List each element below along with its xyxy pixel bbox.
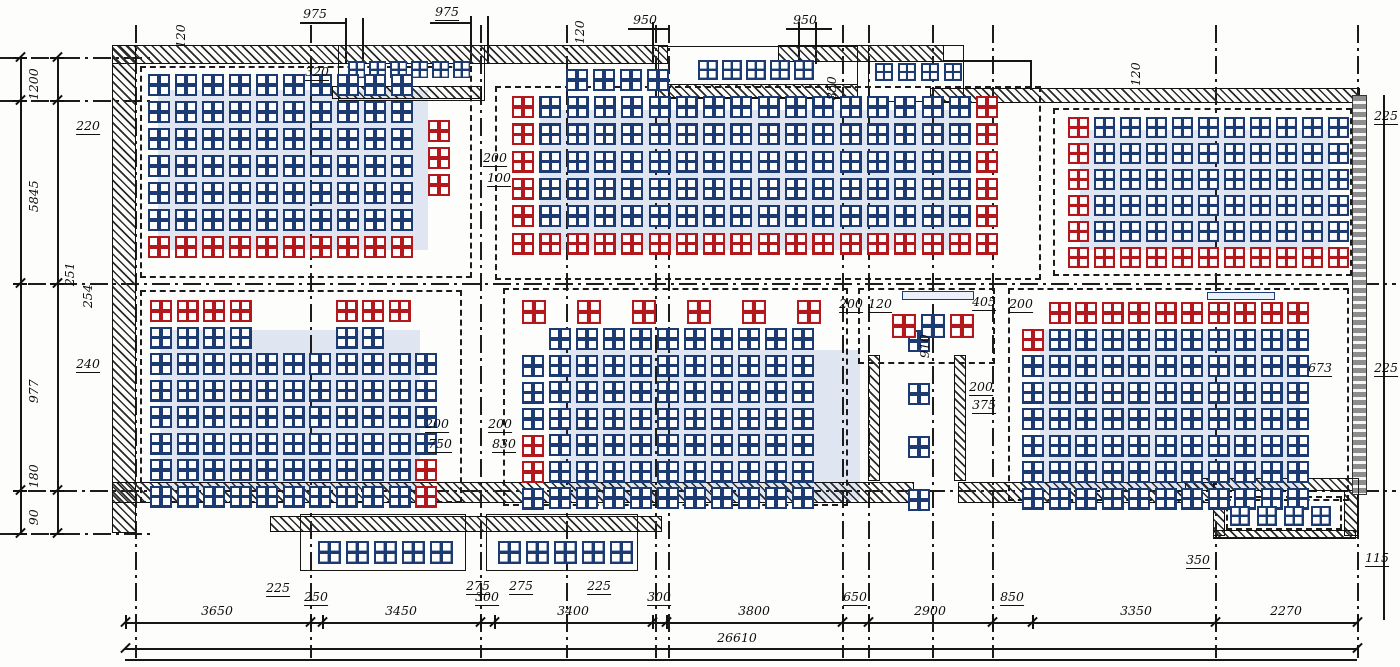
dimension-label: 115 [1365,552,1389,567]
block-red [336,300,358,322]
block-blue [621,123,643,145]
block-blue [1311,506,1331,526]
block-blue [765,487,787,509]
dimension-label: 910 [919,334,932,358]
block-blue [1146,195,1167,216]
block-blue [337,101,359,123]
block-blue [1075,488,1097,510]
dimension-label: 225 [1374,110,1398,125]
grid-axis-line [28,283,1396,285]
dimension-label: 90 [28,509,41,525]
block-blue [362,486,384,508]
dimension-label: 673 [1308,362,1332,377]
dimension-label: 240 [76,358,100,373]
block-blue [362,433,384,455]
block-blue [453,61,470,78]
block-blue [1198,195,1219,216]
block-blue [391,155,413,177]
block-blue [711,328,733,350]
block-blue [337,128,359,150]
block-blue [1261,408,1283,430]
block-blue [792,408,814,430]
block-blue [684,355,706,377]
block-blue [603,328,625,350]
block-blue [539,205,561,227]
block-blue [1208,488,1230,510]
block-blue [1287,461,1309,483]
block-blue [1075,355,1097,377]
block-blue [703,123,725,145]
block-blue [922,96,944,118]
block-blue [391,128,413,150]
block-blue [603,355,625,377]
block-blue [566,69,588,91]
block-blue [567,96,589,118]
block-red [415,486,437,508]
block-blue [1128,355,1150,377]
block-blue [1328,195,1349,216]
dimension-label: 200 [488,418,512,433]
block-red [1068,221,1089,242]
block-blue [738,355,760,377]
block-blue [1155,435,1177,457]
block-blue [549,434,571,456]
wall-hatched [954,355,966,481]
block-blue [1284,506,1304,526]
block-blue [867,96,889,118]
block-blue [649,178,671,200]
block-blue [711,381,733,403]
block-blue [576,408,598,430]
block-red [1172,247,1193,268]
block-blue [1287,382,1309,404]
block-blue [1261,329,1283,351]
block-blue [1172,169,1193,190]
block-blue [1094,169,1115,190]
block-red [1302,247,1323,268]
block-blue [922,178,944,200]
block-blue [794,60,814,80]
block-red [976,205,998,227]
block-blue [649,123,671,145]
block-blue [1302,221,1323,242]
block-blue [711,408,733,430]
block-blue [630,487,652,509]
block-red [512,123,534,145]
block-red [337,236,359,258]
block-blue [765,381,787,403]
block-blue [177,353,199,375]
block-blue [603,434,625,456]
dimension-label: 375 [972,399,996,414]
block-blue [867,151,889,173]
block-blue [1276,169,1297,190]
block-blue [1181,355,1203,377]
block-blue [792,328,814,350]
block-blue [610,541,633,564]
block-blue [175,209,197,231]
dimension-label: 320 [305,66,329,81]
block-blue [389,353,411,375]
block-red [512,233,534,255]
block-blue [758,205,780,227]
block-red [812,233,834,255]
dimension-line [125,648,1357,650]
lintel-bar [902,291,974,300]
block-red [512,178,534,200]
block-red [892,314,916,338]
block-blue [630,355,652,377]
block-blue [1049,329,1071,351]
dimension-label: 220 [76,120,100,135]
block-blue [1181,488,1203,510]
block-blue [1287,435,1309,457]
block-blue [576,487,598,509]
block-blue [202,209,224,231]
block-blue [1328,143,1349,164]
block-blue [1155,488,1177,510]
grid-axis-line [480,25,482,658]
block-red [922,233,944,255]
block-red [730,233,752,255]
block-blue [594,96,616,118]
block-blue [1198,221,1219,242]
floor-plan-canvas: 3650250345030034003003800650290085033502… [0,0,1400,667]
block-blue [703,205,725,227]
block-blue [1120,221,1141,242]
block-blue [1049,382,1071,404]
block-blue [256,155,278,177]
block-blue [202,155,224,177]
block-blue [230,459,252,481]
block-blue [415,380,437,402]
block-blue [730,151,752,173]
block-blue [336,486,358,508]
block-blue [621,205,643,227]
block-blue [1302,143,1323,164]
block-blue [1120,195,1141,216]
block-red [1224,247,1245,268]
block-blue [1075,329,1097,351]
block-red [522,300,546,324]
block-blue [603,461,625,483]
dimension-label: 350 [1186,554,1210,569]
dimension-label: 3350 [1120,605,1152,618]
block-blue [1155,408,1177,430]
block-blue [1230,506,1250,526]
block-blue [785,205,807,227]
block-blue [703,151,725,173]
block-red [797,300,821,324]
wall-hatched [112,45,136,533]
block-blue [944,63,962,81]
block-blue [1276,195,1297,216]
block-red [1049,302,1071,324]
block-blue [594,205,616,227]
dimension-label: 200 [483,152,507,167]
block-blue [256,380,278,402]
block-blue [1128,435,1150,457]
block-blue [1234,329,1256,351]
block-red [175,236,197,258]
block-blue [203,486,225,508]
block-blue [746,60,766,80]
block-blue [621,178,643,200]
dimension-label: 100 [487,172,511,187]
block-blue [309,459,331,481]
block-blue [1094,117,1115,138]
block-blue [309,433,331,455]
block-blue [346,541,369,564]
block-blue [812,151,834,173]
dimension-label: 950 [793,14,817,29]
block-blue [1234,461,1256,483]
block-red [1234,302,1256,324]
block-blue [867,205,889,227]
block-red [1250,247,1271,268]
block-blue [630,434,652,456]
block-blue [1250,169,1271,190]
block-blue [177,433,199,455]
block-blue [758,123,780,145]
block-red [976,233,998,255]
block-blue [621,96,643,118]
block-red [577,300,601,324]
block-blue [738,408,760,430]
block-blue [283,101,305,123]
dimension-label: 5845 [28,180,41,212]
construction-line [430,22,472,24]
block-blue [1146,143,1167,164]
block-blue [738,381,760,403]
block-red [283,236,305,258]
block-blue [549,408,571,430]
block-blue [758,151,780,173]
block-blue [1198,117,1219,138]
block-blue [539,123,561,145]
wall-panel-strip [1352,95,1367,495]
block-blue [949,205,971,227]
block-blue [1261,382,1283,404]
block-blue [620,69,642,91]
block-blue [256,433,278,455]
block-blue [738,328,760,350]
block-blue [1094,195,1115,216]
block-blue [177,459,199,481]
block-red [522,461,544,483]
block-red [389,300,411,322]
dimension-line [57,57,59,533]
block-blue [283,182,305,204]
block-red [522,435,544,457]
block-blue [549,328,571,350]
block-blue [364,209,386,231]
block-blue [1328,117,1349,138]
block-blue [309,353,331,375]
block-blue [840,96,862,118]
block-blue [1250,117,1271,138]
block-blue [309,406,331,428]
block-blue [1120,117,1141,138]
dimension-label: 200 [425,418,449,433]
block-red [976,123,998,145]
block-blue [1250,195,1271,216]
block-blue [785,96,807,118]
block-blue [1208,355,1230,377]
block-red [428,174,450,196]
block-blue [730,205,752,227]
block-blue [738,487,760,509]
block-red [594,233,616,255]
block-red [1328,247,1349,268]
block-blue [256,353,278,375]
dimension-label: 3400 [557,605,589,618]
block-blue [549,487,571,509]
block-blue [594,178,616,200]
block-blue [1287,355,1309,377]
dimension-label: 120 [175,24,188,48]
block-red [391,236,413,258]
dimension-label: 830 [492,438,516,453]
block-blue [336,380,358,402]
block-blue [337,155,359,177]
block-blue [722,60,742,80]
block-blue [908,436,930,458]
block-blue [1049,461,1071,483]
block-blue [150,380,172,402]
block-blue [526,541,549,564]
construction-line [125,659,1357,661]
block-blue [229,101,251,123]
dimension-label: 120 [868,298,892,313]
dimension-label: 3450 [385,605,417,618]
block-blue [310,155,332,177]
block-blue [730,123,752,145]
block-blue [649,96,671,118]
block-blue [364,128,386,150]
block-blue [522,382,544,404]
block-blue [567,123,589,145]
block-blue [177,380,199,402]
block-blue [1287,329,1309,351]
block-blue [921,63,939,81]
block-blue [576,328,598,350]
block-blue [415,353,437,375]
block-red [1068,195,1089,216]
dimension-label: 250 [304,591,328,606]
block-red [148,236,170,258]
block-blue [1224,169,1245,190]
block-blue [549,381,571,403]
block-blue [229,74,251,96]
block-red [676,233,698,255]
block-blue [875,63,893,81]
block-blue [202,128,224,150]
block-blue [894,96,916,118]
block-blue [256,101,278,123]
block-blue [649,205,671,227]
block-red [976,151,998,173]
dimension-label: 3650 [201,605,233,618]
dimension-label: 977 [28,379,41,403]
dimension-label: 275 [466,580,490,595]
block-blue [230,380,252,402]
block-red [428,120,450,142]
dimension-label: 225 [266,582,290,597]
block-red [867,233,889,255]
block-blue [1049,408,1071,430]
block-blue [711,487,733,509]
block-blue [657,487,679,509]
block-blue [1075,408,1097,430]
block-blue [703,96,725,118]
block-red [950,314,974,338]
block-blue [684,487,706,509]
block-blue [1102,329,1124,351]
block-blue [1208,329,1230,351]
block-blue [949,123,971,145]
block-blue [391,101,413,123]
block-red [894,233,916,255]
dimension-label: 850 [1000,591,1024,606]
block-blue [310,101,332,123]
block-blue [922,151,944,173]
block-blue [576,434,598,456]
block-blue [203,433,225,455]
dimension-line [20,57,22,533]
block-red [539,233,561,255]
block-blue [362,406,384,428]
block-blue [1094,221,1115,242]
block-blue [310,128,332,150]
block-blue [150,459,172,481]
block-blue [430,541,453,564]
block-blue [539,178,561,200]
block-red [512,96,534,118]
block-blue [283,353,305,375]
block-blue [703,178,725,200]
block-red [229,236,251,258]
block-blue [949,178,971,200]
block-blue [1128,461,1150,483]
block-blue [362,327,384,349]
block-blue [1208,435,1230,457]
block-blue [203,406,225,428]
block-blue [1172,117,1193,138]
block-blue [840,178,862,200]
block-blue [1102,435,1124,457]
block-blue [1128,488,1150,510]
block-blue [336,433,358,455]
block-blue [177,327,199,349]
block-blue [374,541,397,564]
block-blue [657,381,679,403]
block-blue [1075,435,1097,457]
block-red [976,96,998,118]
block-blue [949,151,971,173]
block-blue [522,408,544,430]
block-red [177,300,199,322]
block-blue [309,380,331,402]
block-blue [1128,329,1150,351]
block-blue [309,486,331,508]
block-blue [603,408,625,430]
block-blue [711,461,733,483]
block-blue [283,380,305,402]
block-blue [554,541,577,564]
block-blue [765,355,787,377]
dimension-label: 200 [839,298,863,313]
